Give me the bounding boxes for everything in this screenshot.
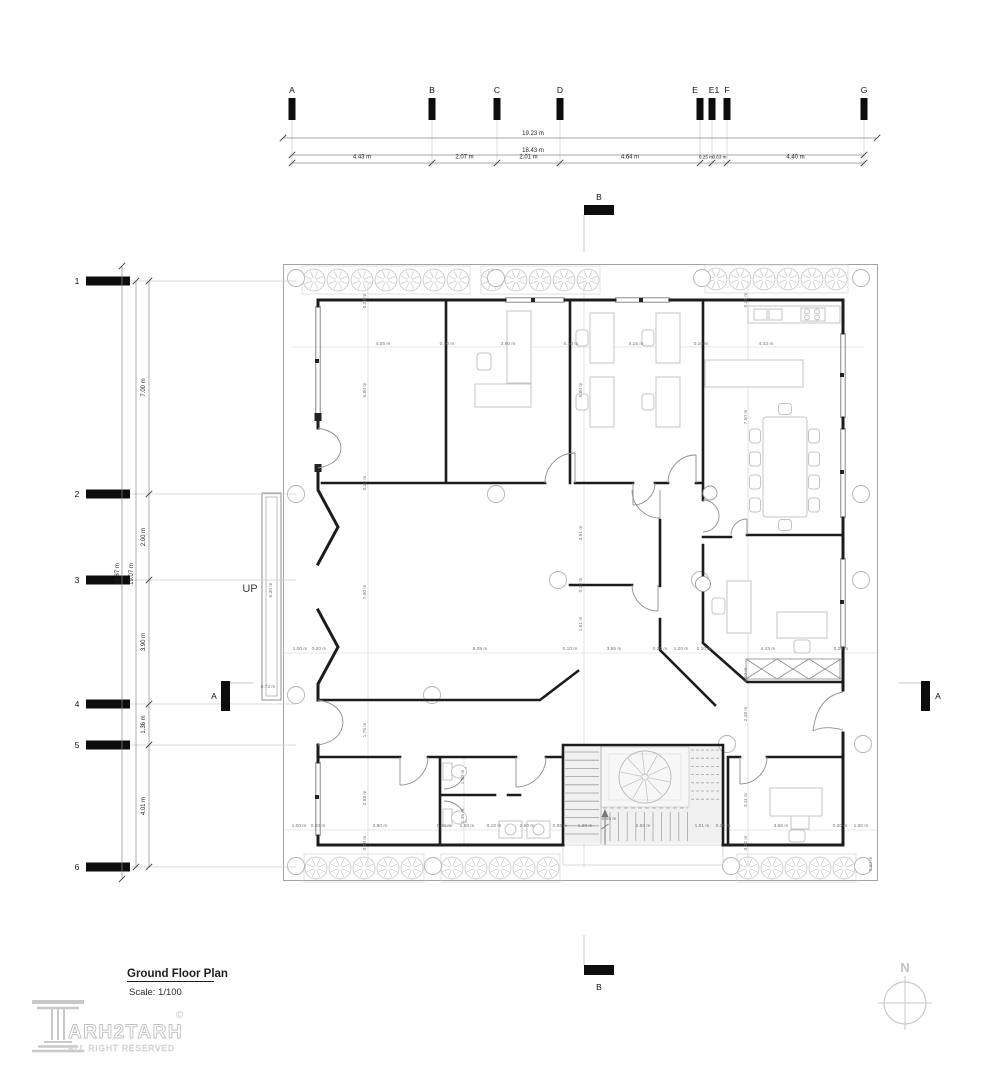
plan-dim-label: 0.10 m	[694, 341, 709, 347]
tree-branch	[310, 271, 313, 278]
tree-branch	[453, 859, 456, 866]
tree-canopy	[529, 269, 551, 291]
tree-branch	[744, 859, 747, 866]
tree-branch	[837, 281, 840, 288]
tree-branch	[353, 276, 360, 279]
tree-branch	[589, 271, 592, 278]
tree-branch	[478, 869, 485, 872]
tree-branch	[531, 281, 538, 284]
plan-dim-label: 0.50 m	[437, 823, 452, 829]
tree-branch	[792, 870, 795, 877]
tree-branch	[401, 276, 408, 279]
tree-branch	[789, 281, 792, 288]
tree-branch	[541, 271, 544, 278]
section-a-right-label: A	[935, 691, 941, 701]
tree-branch	[317, 870, 320, 877]
plan-dim-label: 0.20 m	[311, 823, 326, 829]
chair	[794, 640, 810, 653]
tree-branch	[590, 281, 597, 284]
plan-dim-label: 2.90 m	[520, 823, 535, 829]
tree-branch	[750, 869, 757, 872]
dim-segment-label: 0.25 m	[699, 155, 713, 160]
tree-branch	[339, 271, 342, 278]
corridor-column	[696, 577, 711, 592]
tree-branch	[750, 864, 757, 867]
tree-branch	[539, 869, 546, 872]
grid-number-2: 2	[75, 489, 80, 499]
logo: ARH2TARH © ALL RIGHT RESERVED	[32, 1002, 184, 1053]
tree-branch	[339, 282, 342, 289]
tree-branch	[502, 864, 509, 867]
column-marker	[550, 572, 567, 589]
tree-branch	[467, 869, 474, 872]
grid-bubble-E	[697, 98, 704, 120]
plan-dim-label: 0.05 m	[602, 816, 617, 822]
tree-symbol	[447, 269, 469, 291]
tree-canopy	[399, 269, 421, 291]
tree-symbol	[761, 857, 783, 879]
tree-branch	[435, 282, 438, 289]
dim-segment-label: 1.36 m	[141, 715, 147, 733]
plan-dim-label: 0.22 m	[743, 836, 749, 851]
tree-branch	[814, 275, 821, 278]
grid-bubble-F	[724, 98, 731, 120]
tree-branch	[358, 282, 361, 289]
tree-branch	[760, 281, 763, 288]
tree-canopy	[327, 269, 349, 291]
tree-branch	[459, 282, 462, 289]
tree-branch	[340, 276, 347, 279]
tree-symbol	[375, 269, 397, 291]
tree-branch	[436, 276, 443, 279]
conference-table	[763, 417, 807, 517]
planter-strip	[705, 265, 848, 293]
grid-bubble-1	[86, 277, 130, 286]
plan-dim-label: 0.20 m	[362, 836, 368, 851]
tree-branch	[784, 281, 787, 288]
tree-branch	[449, 276, 456, 279]
tree-symbol	[577, 269, 599, 291]
tree-branch	[518, 281, 525, 284]
tree-branch	[712, 281, 715, 288]
tree-branch	[512, 282, 515, 289]
column-marker	[694, 270, 711, 287]
tree-branch	[525, 870, 528, 877]
tree-branch	[317, 859, 320, 866]
plan-dim-label: 6.30 m	[268, 583, 274, 598]
tree-branch	[477, 870, 480, 877]
tree-branch	[310, 282, 313, 289]
plan-dim-label: 0.25 m	[743, 293, 749, 308]
tree-symbol	[833, 857, 855, 879]
tree-symbol	[753, 268, 775, 290]
plan-dim-label: 3.91 m	[578, 526, 584, 541]
tree-branch	[366, 864, 373, 867]
tree-branch	[565, 271, 568, 278]
column-grid-top: ABCDEE1FG19.23 m18.43 m4.43 m2.07 m2.01 …	[280, 85, 880, 167]
stair-core	[563, 746, 723, 865]
dim-total-label: 19.07 m	[129, 563, 135, 585]
tree-canopy	[801, 268, 823, 290]
tree-branch	[755, 280, 762, 283]
entrance-door	[318, 428, 341, 468]
grid-letter-E: E	[692, 85, 698, 95]
tree-symbol	[809, 857, 831, 879]
tree-branch	[389, 859, 392, 866]
tree-canopy	[505, 269, 527, 291]
tree-branch	[364, 281, 371, 284]
tree-branch	[550, 869, 557, 872]
tree-branch	[773, 859, 776, 866]
tree-branch	[460, 276, 467, 279]
plan-dim-label: 1.01 m	[695, 823, 710, 829]
column-marker	[488, 270, 505, 287]
tree-symbol	[423, 269, 445, 291]
plan-dim-label: 5.80 m	[578, 383, 584, 398]
tree-branch	[555, 281, 562, 284]
tree-branch	[518, 276, 525, 279]
tree-branch	[331, 869, 338, 872]
dim-segment-label: 2.01 m	[519, 155, 537, 161]
tree-branch	[526, 864, 533, 867]
plan-dim-label: 0.10 m	[440, 341, 455, 347]
tree-canopy	[513, 857, 535, 879]
tree-branch	[541, 282, 544, 289]
tree-symbol	[377, 857, 399, 879]
tree-branch	[718, 275, 725, 278]
tree-branch	[739, 869, 746, 872]
tree-canopy	[305, 857, 327, 879]
section-a-left-marker	[221, 681, 230, 711]
tree-branch	[526, 869, 533, 872]
tree-branch	[803, 275, 810, 278]
plan-dim-label: 3.95 m	[607, 646, 622, 652]
section-a-right-marker	[921, 681, 930, 711]
plan-dim-label: 7.50 m	[743, 410, 749, 425]
tree-branch	[766, 275, 773, 278]
tree-branch	[478, 864, 485, 867]
tree-branch	[436, 281, 443, 284]
tree-branch	[816, 870, 819, 877]
tree-canopy	[553, 269, 575, 291]
tree-branch	[584, 271, 587, 278]
grid-number-6: 6	[75, 862, 80, 872]
tree-branch	[790, 280, 797, 283]
tree-branch	[549, 859, 552, 866]
tree-canopy	[489, 857, 511, 879]
tree-branch	[342, 869, 349, 872]
tree-branch	[808, 281, 811, 288]
tree-branch	[425, 276, 432, 279]
tree-branch	[741, 270, 744, 277]
office-desk-bottom-right	[770, 788, 822, 842]
tree-branch	[814, 280, 821, 283]
tree-branch	[363, 271, 366, 278]
tree-branch	[390, 864, 397, 867]
tree-branch	[539, 864, 546, 867]
tree-branch	[382, 271, 385, 278]
plan-dim-label: 3.90 m	[373, 823, 388, 829]
plan-dim-label: 0.10 m	[743, 668, 749, 683]
logo-brand: ARH2TARH	[68, 1022, 183, 1043]
logo-registered-mark: ©	[176, 1010, 184, 1021]
tree-canopy	[753, 268, 775, 290]
tree-branch	[768, 859, 771, 866]
left-lower-door	[318, 700, 343, 745]
tree-branch	[491, 864, 498, 867]
dim-segment-label: 0.63 m	[712, 155, 726, 160]
grid-letter-C: C	[494, 85, 500, 95]
plan-dim-label: 1.20 m	[674, 646, 689, 652]
tree-branch	[507, 276, 514, 279]
tree-branch	[542, 281, 549, 284]
section-b-top-marker	[584, 205, 614, 215]
tree-branch	[334, 271, 337, 278]
tree-branch	[822, 869, 829, 872]
tree-branch	[544, 870, 547, 877]
tree-branch	[837, 270, 840, 277]
plan-dim-label: 0.10 m	[564, 341, 579, 347]
tree-symbol	[553, 269, 575, 291]
drawing-scale: Scale: 1/100	[129, 987, 182, 998]
tree-branch	[560, 282, 563, 289]
grid-bubble-4	[86, 700, 130, 709]
planter-strip	[304, 854, 424, 882]
tree-branch	[813, 281, 816, 288]
tree-branch	[579, 276, 586, 279]
tree-branch	[355, 864, 362, 867]
tree-branch	[845, 859, 848, 866]
tree-branch	[340, 281, 347, 284]
plan-dim-label: 0.60 m	[868, 857, 874, 872]
tree-branch	[377, 276, 384, 279]
plan-dim-label: 0.20 m	[362, 294, 368, 309]
tree-branch	[316, 276, 323, 279]
tree-branch	[496, 859, 499, 866]
tree-branch	[589, 282, 592, 289]
tree-branch	[766, 280, 773, 283]
tree-branch	[579, 281, 586, 284]
tree-branch	[379, 869, 386, 872]
tree-branch	[341, 870, 344, 877]
tree-branch	[413, 870, 416, 877]
tree-branch	[566, 276, 573, 279]
tree-symbol	[825, 268, 847, 290]
tree-branch	[840, 859, 843, 866]
kitchen-island	[705, 360, 803, 387]
tree-branch	[549, 870, 552, 877]
tree-canopy	[441, 857, 463, 879]
grid-bubble-C	[494, 98, 501, 120]
tree-branch	[430, 282, 433, 289]
tree-branch	[358, 271, 361, 278]
grid-bubble-2	[86, 490, 130, 499]
tree-branch	[507, 281, 514, 284]
tree-canopy	[785, 857, 807, 879]
grid-letter-F: F	[724, 85, 729, 95]
tree-branch	[454, 869, 461, 872]
tree-branch	[774, 864, 781, 867]
tree-branch	[584, 282, 587, 289]
tree-branch	[822, 864, 829, 867]
tree-branch	[342, 864, 349, 867]
tree-symbol	[513, 857, 535, 879]
tree-branch	[838, 280, 845, 283]
north-arrow	[878, 976, 932, 1030]
tree-branch	[787, 864, 794, 867]
tree-branch	[536, 271, 539, 278]
tree-branch	[312, 870, 315, 877]
tree-branch	[792, 859, 795, 866]
plan-dim-label: 0.10 m	[563, 646, 578, 652]
dim-segment-label: 4.01 m	[141, 797, 147, 815]
tree-branch	[435, 271, 438, 278]
column-marker	[853, 572, 870, 589]
tree-branch	[760, 270, 763, 277]
grid-bubble-E1	[709, 98, 716, 120]
tree-branch	[312, 859, 315, 866]
tree-branch	[305, 281, 312, 284]
grid-number-1: 1	[75, 276, 80, 286]
grid-letter-E1: E1	[709, 85, 720, 95]
tree-branch	[542, 276, 549, 279]
tree-branch	[384, 870, 387, 877]
right-exterior-door	[813, 692, 843, 731]
grid-letter-G: G	[861, 85, 868, 95]
grid-bubble-6	[86, 863, 130, 872]
tree-branch	[832, 281, 835, 288]
chair	[642, 394, 654, 410]
column-marker	[855, 736, 872, 753]
tree-symbol	[489, 857, 511, 879]
plan-dim-label: 1.61 m	[578, 617, 584, 632]
tree-branch	[443, 869, 450, 872]
tree-branch	[408, 859, 411, 866]
tree-branch	[835, 869, 842, 872]
tree-branch	[443, 864, 450, 867]
tree-branch	[765, 270, 768, 277]
plan-dim-label: 5.80 m	[362, 383, 368, 398]
tree-branch	[808, 270, 811, 277]
tree-canopy	[761, 857, 783, 879]
tree-canopy	[537, 857, 559, 879]
tree-symbol	[353, 857, 375, 879]
tree-branch	[502, 869, 509, 872]
tree-branch	[731, 275, 738, 278]
tree-branch	[329, 281, 336, 284]
chair	[642, 330, 654, 346]
column-marker	[853, 270, 870, 287]
tree-branch	[425, 281, 432, 284]
tree-branch	[384, 859, 387, 866]
grid-number-5: 5	[75, 740, 80, 750]
tree-branch	[449, 281, 456, 284]
plan-dim-label: 3.65 m	[774, 823, 789, 829]
tree-branch	[712, 270, 715, 277]
tree-canopy	[377, 857, 399, 879]
tree-branch	[744, 870, 747, 877]
tree-branch	[821, 859, 824, 866]
tree-branch	[472, 870, 475, 877]
tree-branch	[491, 869, 498, 872]
tree-branch	[763, 869, 770, 872]
tree-canopy	[375, 269, 397, 291]
tree-canopy	[833, 857, 855, 879]
closet-x-braced	[746, 659, 841, 679]
dim-segment-label: 4.43 m	[353, 155, 371, 161]
tree-canopy	[401, 857, 423, 879]
plan-dim-label: 0.10 m	[653, 646, 668, 652]
dim-segment-label: 4.64 m	[621, 155, 639, 161]
tree-symbol	[505, 269, 527, 291]
tree-branch	[515, 864, 522, 867]
tree-branch	[718, 280, 725, 283]
tree-branch	[520, 870, 523, 877]
tree-branch	[379, 864, 386, 867]
corridor-column	[703, 486, 717, 500]
tree-branch	[846, 864, 853, 867]
tree-symbol	[785, 857, 807, 879]
tree-branch	[768, 870, 771, 877]
tree-symbol	[441, 857, 463, 879]
tree-branch	[827, 280, 834, 283]
title-block: Ground Floor Plan Scale: 1/100	[127, 968, 228, 998]
plan-dim-label: 0.20 m	[834, 646, 849, 652]
plan-dim-label: 1.00 m	[292, 823, 307, 829]
tree-branch	[413, 859, 416, 866]
plan-dim-label: 0.20 m	[312, 646, 327, 652]
tree-canopy	[329, 857, 351, 879]
tree-branch	[832, 270, 835, 277]
tree-symbol	[351, 269, 373, 291]
tree-branch	[525, 859, 528, 866]
dim-segment-label: 3.90 m	[141, 633, 147, 651]
tree-branch	[411, 271, 414, 278]
tree-symbol	[777, 268, 799, 290]
tree-canopy	[423, 269, 445, 291]
grid-bubble-5	[86, 741, 130, 750]
tree-symbol	[327, 269, 349, 291]
tree-symbol	[305, 857, 327, 879]
tree-branch	[821, 870, 824, 877]
tree-branch	[520, 859, 523, 866]
tree-branch	[454, 271, 457, 278]
tree-branch	[531, 276, 538, 279]
tree-branch	[388, 276, 395, 279]
tree-canopy	[351, 269, 373, 291]
north-label: N	[900, 960, 909, 975]
tree-branch	[840, 870, 843, 877]
tree-branch	[798, 869, 805, 872]
tree-branch	[408, 870, 411, 877]
tree-branch	[460, 281, 467, 284]
tree-branch	[827, 275, 834, 278]
tree-branch	[390, 869, 397, 872]
open-office-desks	[576, 313, 680, 427]
plan-dim-label: 0.73 m	[261, 684, 276, 690]
tree-symbol	[465, 857, 487, 879]
toilet	[443, 763, 452, 780]
tree-branch	[331, 864, 338, 867]
tree-canopy	[777, 268, 799, 290]
tree-branch	[779, 280, 786, 283]
tree-branch	[411, 282, 414, 289]
tree-branch	[336, 859, 339, 866]
tree-symbol	[329, 857, 351, 879]
tree-branch	[749, 870, 752, 877]
grid-bubble-G	[861, 98, 868, 120]
tree-branch	[412, 281, 419, 284]
